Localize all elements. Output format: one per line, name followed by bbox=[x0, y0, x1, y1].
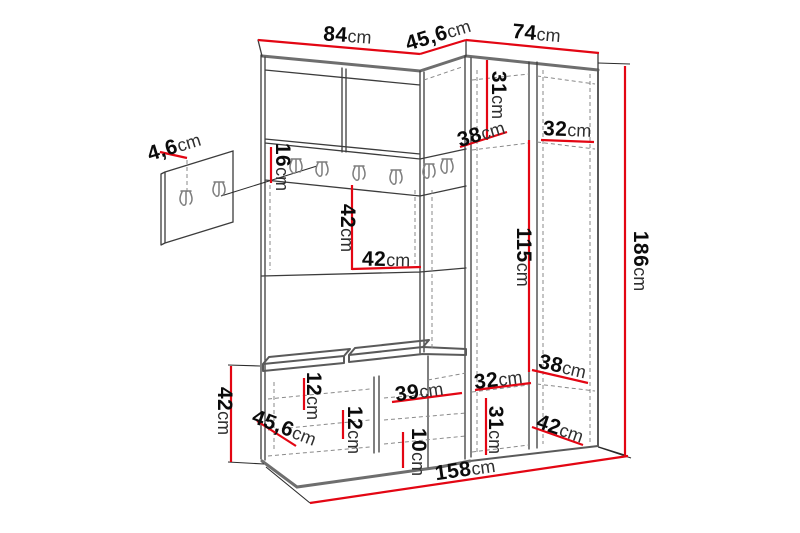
dim-label-bench-height: 42cm bbox=[213, 387, 236, 435]
hook-leader-line bbox=[221, 166, 317, 196]
dim-label-total-width: 158cm bbox=[434, 454, 497, 485]
dim-label-lower-compartment-height: 31cm bbox=[484, 406, 507, 454]
dim-label-cushion-height-left: 12cm bbox=[302, 372, 325, 420]
furniture-dimension-diagram: 84cm 45,6cm 74cm 4,6cm 16cm 31cm 38cm 32… bbox=[0, 0, 800, 533]
coat-hook-icon bbox=[180, 191, 192, 205]
dim-label-lower-right-width: 42cm bbox=[534, 410, 587, 447]
dim-label-niche-width: 42cm bbox=[362, 248, 411, 272]
dim-label-right-width: 74cm bbox=[511, 20, 561, 47]
dim-label-cushion-height-mid: 12cm bbox=[343, 406, 366, 454]
dim-label-niche-height: 42cm bbox=[336, 204, 359, 252]
coat-hook-icon bbox=[441, 159, 453, 173]
dimension-labels: 84cm 45,6cm 74cm 4,6cm 16cm 31cm 38cm 32… bbox=[145, 14, 652, 485]
coat-hook-icon bbox=[390, 170, 402, 184]
dim-label-hanging-height: 115cm bbox=[512, 227, 535, 286]
dim-label-upper-shelf-depth: 38cm bbox=[455, 116, 508, 152]
bench-cushions bbox=[263, 340, 466, 371]
coat-hook-icon bbox=[353, 166, 365, 180]
dim-label-bench-compartment-height: 10cm bbox=[407, 428, 430, 476]
coat-hook-icon bbox=[423, 164, 435, 178]
dim-label-total-height: 186cm bbox=[629, 231, 652, 292]
coat-hook-icon bbox=[213, 182, 225, 196]
dim-label-panel-thickness: 4,6cm bbox=[145, 128, 204, 166]
wall-hook-panel bbox=[161, 151, 233, 245]
dim-label-main-width: 84cm bbox=[323, 22, 373, 48]
dim-label-upper-shelf-height: 31cm bbox=[487, 71, 510, 119]
dim-label-bench-compartment-width: 39cm bbox=[394, 377, 445, 407]
diagram-svg: 84cm 45,6cm 74cm 4,6cm 16cm 31cm 38cm 32… bbox=[0, 0, 800, 533]
dim-label-rail-height: 16cm bbox=[271, 143, 294, 191]
dim-label-lower-shelf-depth: 38cm bbox=[536, 350, 588, 383]
dim-label-lower-left-width: 32cm bbox=[473, 365, 524, 394]
dim-label-upper-right-width: 32cm bbox=[543, 117, 592, 142]
coat-hooks bbox=[180, 159, 453, 205]
coat-hook-icon bbox=[316, 162, 328, 176]
